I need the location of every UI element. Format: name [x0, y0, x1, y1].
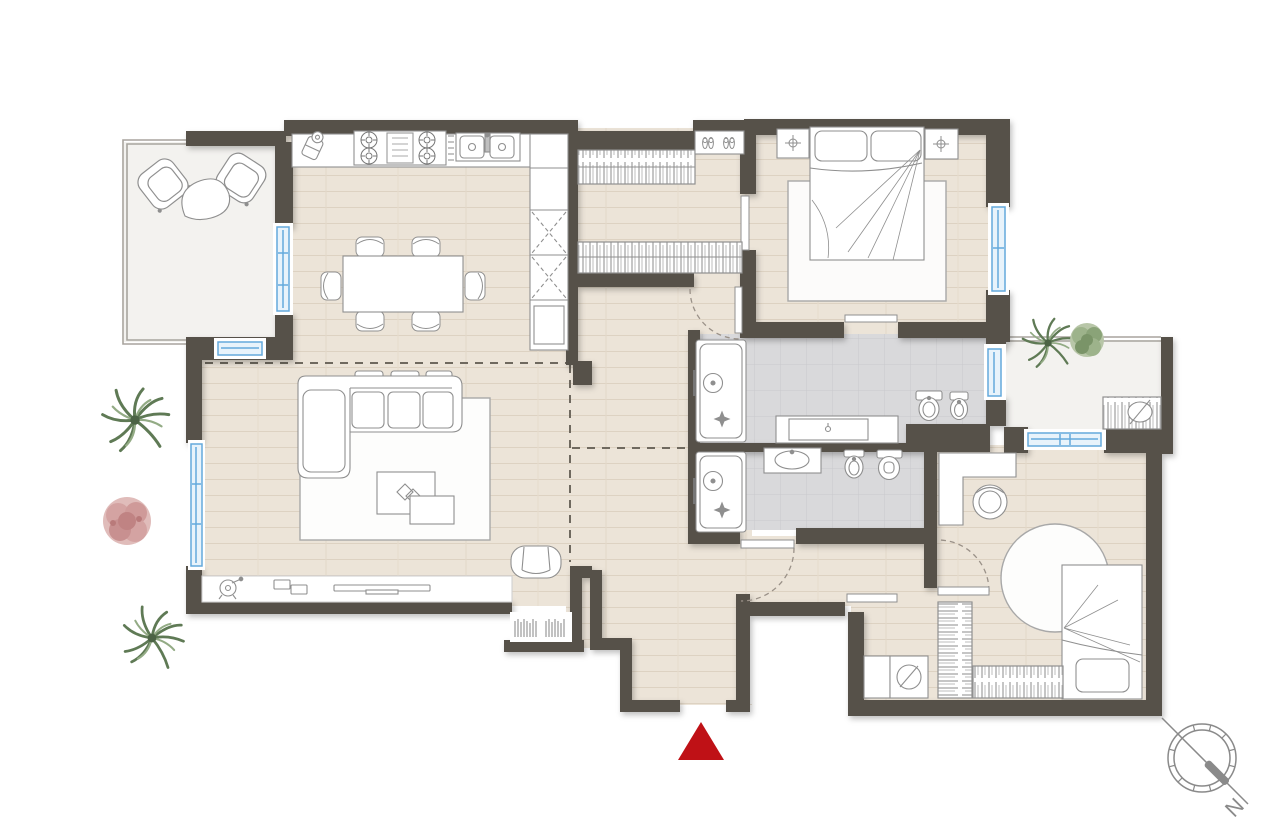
- floor-plan-page: N: [0, 0, 1280, 835]
- bathroom1-sliding-door: [845, 315, 897, 322]
- vanity-2: [764, 448, 821, 473]
- window-master-bedroom: [992, 207, 1005, 291]
- shower-2: [693, 452, 746, 532]
- laundry-counter: [864, 656, 890, 698]
- entrance-arrow: [678, 722, 724, 760]
- palm-plant-icon: [101, 388, 169, 455]
- media-box: [274, 580, 290, 589]
- floor-plan-drawing: N: [0, 0, 1280, 835]
- compass-rose-icon: N: [1162, 718, 1249, 822]
- green-plant-icon: [1070, 323, 1104, 357]
- pink-plant-icon: [103, 497, 151, 545]
- bathroom2-door-leaf: [741, 540, 794, 548]
- dining-chair: [356, 237, 384, 257]
- side-table: [410, 496, 454, 524]
- dining-chair: [412, 237, 440, 257]
- shoe-shelf: [695, 131, 744, 154]
- dresser: [973, 666, 1063, 698]
- right-balcony: [1103, 397, 1161, 429]
- stove-icon: [354, 131, 454, 165]
- kitchen-sink-icon: [456, 133, 520, 161]
- bidet-1: [950, 392, 968, 420]
- compass-north-label: N: [1220, 793, 1249, 822]
- shower-1: [693, 340, 746, 442]
- bidet-2: [844, 450, 864, 478]
- media-box: [291, 585, 307, 594]
- window-dining-balcony: [277, 227, 289, 311]
- bookshelf: [938, 602, 972, 698]
- palm-plant-icon: [113, 601, 190, 677]
- dining-chair: [356, 311, 384, 331]
- kitchen-tall-cabinets: [530, 134, 568, 350]
- book-niche: [510, 612, 572, 642]
- desk-chair: [973, 485, 1007, 519]
- window-living-left: [191, 444, 202, 566]
- closet-door-leaf: [735, 287, 742, 333]
- dining-chair: [465, 272, 485, 300]
- dining-table: [343, 256, 463, 312]
- vanity-1: [776, 416, 898, 443]
- hall-sliding-door: [847, 594, 897, 602]
- hall-armchair: [511, 546, 561, 578]
- window-bathroom1: [988, 349, 1001, 396]
- window-living-balcony: [218, 342, 262, 355]
- dining-chair: [412, 311, 440, 331]
- single-bed: [1062, 565, 1142, 699]
- master-bed: [810, 127, 924, 260]
- dining-chair: [321, 272, 341, 300]
- washing-machine-icon: [890, 656, 928, 698]
- laundry-nook: [864, 656, 928, 698]
- window-bedroom2: [1028, 433, 1101, 446]
- bedroom2-door-leaf: [938, 587, 989, 595]
- tv-console: [202, 576, 512, 602]
